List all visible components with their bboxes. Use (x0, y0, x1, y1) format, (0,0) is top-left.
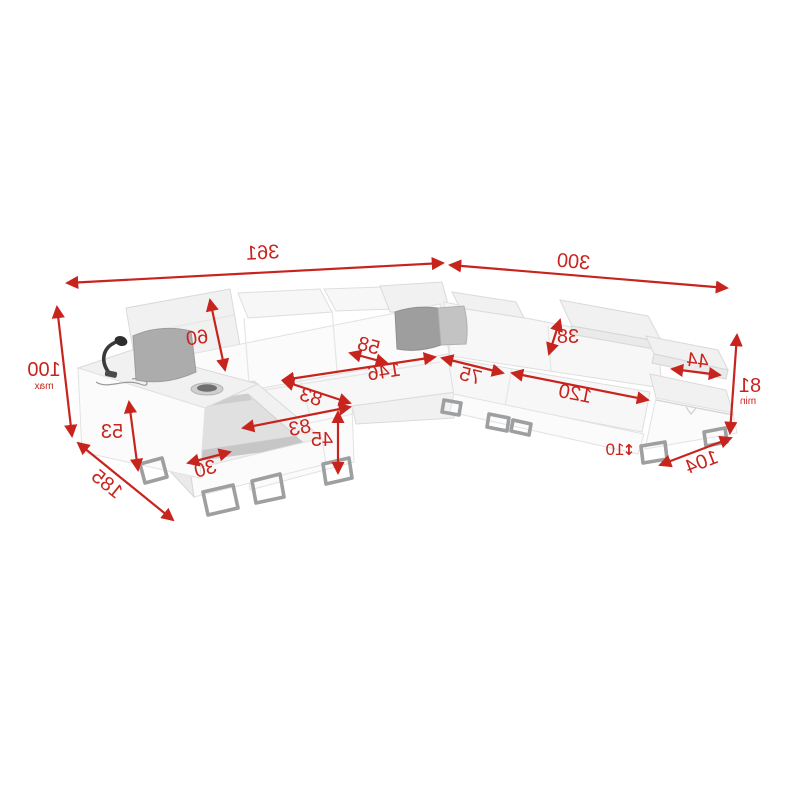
lamp-head (113, 334, 128, 347)
dim-label-10: 10 (606, 440, 625, 459)
cupholder (191, 383, 223, 395)
dim-label-104: 104 (682, 446, 721, 478)
dim-height-max: 100 max (27, 307, 72, 436)
corner-pillow-light (438, 306, 467, 345)
leg (203, 485, 238, 515)
dim-leg-height: 10 ↕ (606, 440, 636, 459)
folded-headrest-1 (238, 289, 332, 318)
dim-label-45: 45 (311, 429, 333, 451)
leg (140, 458, 167, 483)
leg-height-arrow-icon: ↕ (623, 441, 636, 459)
dim-span-right: 300 (450, 250, 727, 288)
dim-note-max: max (35, 381, 54, 392)
dim-label-81: 81 (739, 375, 761, 397)
diagram-canvas: 361 300 100 max 60 58 146 83 (0, 0, 800, 800)
dim-label-53: 53 (101, 421, 123, 443)
dim-label-300: 300 (556, 250, 591, 275)
dim-note-min: min (740, 396, 756, 407)
dim-label-44: 44 (685, 349, 710, 374)
dim-label-60: 60 (185, 326, 210, 351)
dim-label-185: 185 (87, 465, 127, 503)
dim-label-100: 100 (27, 359, 60, 381)
dim-label-83b: 83 (287, 415, 313, 441)
dim-height-min: 81 min (730, 335, 761, 433)
corner-pillow-dark (395, 307, 441, 350)
dim-span-left: 361 (67, 241, 443, 283)
sofa-dimension-diagram: 361 300 100 max 60 58 146 83 (0, 0, 800, 800)
dim-label-38: 38 (557, 326, 579, 348)
dim-label-361: 361 (245, 241, 279, 265)
